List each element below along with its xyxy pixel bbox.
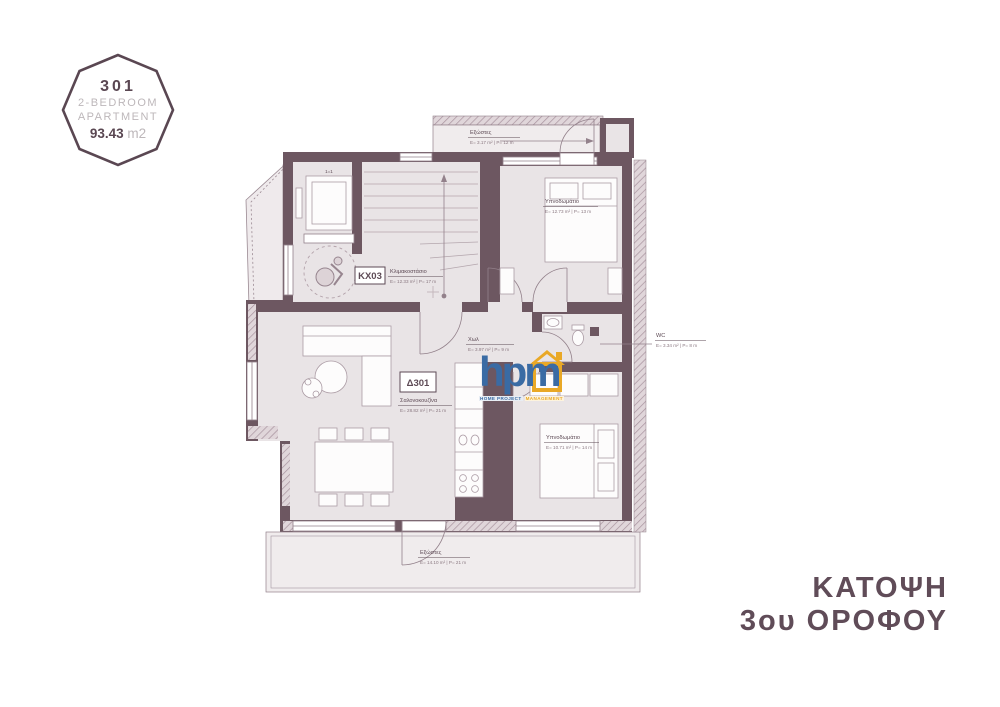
logo-text: hpm	[479, 352, 559, 392]
sheet-title-line1: ΚΑΤΟΨΗ	[740, 572, 948, 605]
svg-text:Κλιμακοστάσιο: Κλιμακοστάσιο	[390, 268, 427, 275]
opening-entrance	[420, 302, 462, 312]
core-code: ΚΧ03	[355, 267, 385, 284]
door-sill-balcony-bottom	[402, 521, 446, 531]
hpm-logo: hpm HOME PROJECT MANAGEMENT	[479, 350, 565, 401]
window-living-bottom	[293, 521, 395, 531]
svg-text:Εξώστες: Εξώστες	[420, 550, 442, 556]
window-lobby-left	[284, 245, 293, 295]
svg-text:Σαλονοκουζίνα: Σαλονοκουζίνα	[400, 398, 438, 404]
svg-text:Ε= 3.17 m² | Ρ= 12 m: Ε= 3.17 m² | Ρ= 12 m	[470, 140, 514, 145]
svg-text:Ε= 12.73 m² | Ρ= 13 m: Ε= 12.73 m² | Ρ= 13 m	[545, 209, 591, 214]
window-living-left	[247, 362, 257, 420]
elevator-marker: 1=1	[325, 169, 333, 174]
balcony-top	[433, 116, 634, 158]
unit-code: Δ301	[400, 372, 436, 392]
svg-text:Υπνοδωμάτιο: Υπνοδωμάτιο	[545, 198, 579, 205]
svg-text:Ε= 28.82 m² | Ρ= 21 m: Ε= 28.82 m² | Ρ= 21 m	[400, 408, 446, 413]
dining-table-icon	[315, 428, 393, 506]
opening-hall	[488, 302, 522, 312]
svg-text:Χωλ: Χωλ	[468, 337, 479, 343]
svg-text:Ε= 10.71 m² | Ρ= 14 m: Ε= 10.71 m² | Ρ= 14 m	[546, 445, 592, 450]
svg-text:WC: WC	[656, 333, 665, 339]
svg-text:Εξώστες: Εξώστες	[470, 130, 492, 136]
floor-plan-sheet: 301 2-BEDROOM APARTMENT 93.43 m2	[0, 0, 1000, 707]
elevator: 1=1	[296, 162, 362, 254]
svg-text:Δ301: Δ301	[407, 378, 430, 389]
svg-text:Ε= 14.10 m² | Ρ= 21 m: Ε= 14.10 m² | Ρ= 21 m	[420, 560, 466, 565]
svg-text:Υπνοδωμάτιο: Υπνοδωμάτιο	[546, 434, 580, 441]
logo-tagline-right: MANAGEMENT	[525, 396, 564, 401]
svg-text:ΚΧ03: ΚΧ03	[358, 271, 382, 282]
door-sill-balcony-top	[560, 153, 594, 165]
window-bedroom-bottom	[516, 521, 600, 531]
opening-bedroom-top	[533, 302, 567, 312]
logo-tagline: HOME PROJECT MANAGEMENT	[479, 396, 565, 401]
sheet-title-line2: 3ου ΟΡΟΦΟΥ	[740, 605, 948, 638]
svg-text:Ε= 3.34 m² | Ρ= 8 m: Ε= 3.34 m² | Ρ= 8 m	[656, 343, 697, 348]
sheet-title: ΚΑΤΟΨΗ 3ου ΟΡΟΦΟΥ	[740, 572, 948, 639]
logo-tagline-left: HOME PROJECT	[479, 396, 523, 401]
window-stairwell	[400, 153, 432, 161]
svg-text:Ε= 12.33 m² | Ρ= 17 m: Ε= 12.33 m² | Ρ= 17 m	[390, 279, 436, 284]
